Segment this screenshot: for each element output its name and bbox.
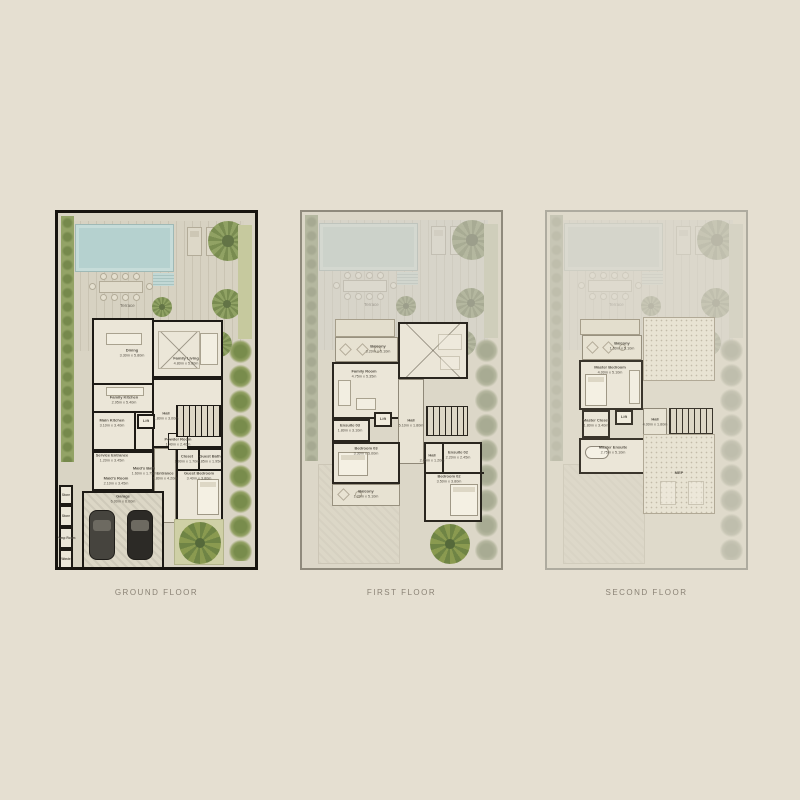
palm-tree-icon — [456, 288, 486, 318]
sofa-icon — [438, 334, 462, 350]
outdoor-seat-icon — [660, 481, 676, 505]
chair-icon — [600, 293, 607, 300]
room-label-family-living: Family Living4.80m x 5.80m — [165, 356, 207, 366]
room-label-balcony-top: Balcony3.20m x 5.10m — [357, 344, 399, 354]
pergola — [335, 319, 395, 337]
palm-tree-icon — [396, 296, 416, 316]
caption-second-floor: SECOND FLOOR — [545, 588, 748, 597]
room-label-balcony-lower: Balcony1.20m x 5.10m — [345, 489, 387, 499]
chair-icon — [100, 294, 107, 301]
tree-icon — [179, 522, 221, 564]
wall — [94, 383, 152, 385]
room-label-service-entrance: Service Entrance1.20m x 3.45m — [91, 453, 133, 463]
outdoor-dining-table — [585, 276, 635, 296]
room-label-hall-1: Hall5.10m x 1.80m — [390, 418, 432, 428]
chair-icon — [100, 273, 107, 280]
room-label-powder: Powder Room1.40m x 2.40m — [157, 437, 199, 447]
outdoor-seat-icon — [688, 481, 704, 505]
outdoor-dining-table — [340, 276, 390, 296]
room-label-master-bedroom: Master Bedroom4.00m x 5.10m — [589, 365, 631, 375]
room-label-store-1: Store — [55, 493, 83, 497]
ground-floor-plan: Terrace Dining3.30m x 5.80m — [55, 210, 258, 570]
chair-icon — [600, 272, 607, 279]
palm-tree-icon — [641, 296, 661, 316]
first-floor-plan: Terrace — [300, 210, 503, 570]
chair-icon — [377, 293, 384, 300]
chair-icon — [635, 282, 642, 289]
wall — [134, 411, 136, 451]
chair-icon — [122, 294, 129, 301]
lawn-strip — [484, 224, 498, 338]
sun-lounger-icon — [676, 226, 691, 255]
lawn-strip — [729, 224, 743, 338]
tree-icon — [430, 524, 470, 564]
sofa-icon — [356, 398, 376, 410]
lawn-strip — [238, 225, 252, 339]
car-icon — [127, 510, 153, 560]
roof-terrace — [643, 317, 715, 381]
second-floor-plan: Terrace Balcony1.50m x 5.10m Master Bedr… — [545, 210, 748, 570]
room-label-terrace: Terrace — [364, 302, 379, 307]
roof-below — [563, 464, 645, 564]
table-top — [343, 280, 387, 292]
chair-icon — [111, 294, 118, 301]
room-label-store-2: Store — [55, 514, 83, 518]
room-label-hall: Hall4.00m x 1.80m — [634, 417, 676, 427]
chair-icon — [111, 273, 118, 280]
room-label-guest-bath: Guest Bath1.85m x 1.95m — [189, 454, 231, 464]
chair-icon — [355, 272, 362, 279]
room-label-waste: Waste — [55, 557, 83, 561]
sofa-icon — [440, 356, 460, 370]
table-top — [99, 281, 143, 293]
room-label-master-ensuite: Master Ensuite2.75m x 5.10m — [592, 445, 634, 455]
caption-ground-floor: GROUND FLOOR — [55, 588, 258, 597]
chair-icon — [122, 273, 129, 280]
outdoor-seat-icon — [586, 341, 599, 354]
chair-icon — [622, 293, 629, 300]
chair-icon — [366, 272, 373, 279]
room-label-hall: Hall1.80m x 3.00m — [145, 411, 187, 421]
wall — [94, 411, 152, 413]
swimming-pool — [75, 224, 174, 272]
bed-icon — [450, 484, 478, 516]
sun-lounger-icon — [431, 226, 446, 255]
room-label-terrace: Terrace — [120, 303, 135, 308]
chair-icon — [390, 282, 397, 289]
room-label-family-kitchen: Family Kitchen2.95m x 5.40m — [103, 395, 145, 405]
chair-icon — [366, 293, 373, 300]
room-label-bedroom-03: Bedroom 033.30m x 5.00m — [345, 446, 387, 456]
chair-icon — [333, 282, 340, 289]
guest-bed-icon — [197, 479, 219, 515]
swimming-pool — [319, 223, 418, 271]
chair-icon — [589, 293, 596, 300]
chair-icon — [133, 273, 140, 280]
outdoor-dining-table — [96, 277, 146, 297]
room-label-maids-room: Maid's Room2.10m x 3.45m — [95, 476, 137, 486]
chair-icon — [622, 272, 629, 279]
pool-steps — [153, 273, 174, 286]
pool-steps — [397, 272, 418, 285]
chair-icon — [355, 293, 362, 300]
double-height-void — [398, 322, 468, 379]
chair-icon — [133, 294, 140, 301]
chair-icon — [611, 293, 618, 300]
room-label-mep: MEP — [658, 471, 700, 476]
caption-first-floor: FIRST FLOOR — [300, 588, 503, 597]
brochure-page: Terrace Dining3.30m x 5.80m — [0, 0, 800, 800]
car-icon — [89, 510, 115, 560]
outdoor-seat-icon — [339, 343, 352, 356]
chair-icon — [611, 272, 618, 279]
room-label-pump-room: Pump Room — [55, 536, 83, 540]
chair-icon — [377, 272, 384, 279]
room-label-terrace: Terrace — [609, 302, 624, 307]
room-label-family-room: Family Room4.75m x 5.35m — [343, 369, 385, 379]
sofa-icon — [338, 380, 351, 406]
room-label-bedroom-02: Bedroom 023.50m x 3.80m — [428, 474, 470, 484]
room-label-guest-bedroom: Guest Bedroom3.40m x 3.80m — [178, 471, 220, 481]
palm-tree-icon — [152, 297, 172, 317]
chair-icon — [89, 283, 96, 290]
sun-lounger-icon — [187, 227, 202, 256]
pergola — [580, 319, 640, 335]
hedge-row — [305, 215, 318, 461]
room-label-ensuite-02: Ensuite 022.20m x 2.45m — [437, 450, 479, 460]
tree-row — [229, 339, 252, 561]
pool-steps — [642, 272, 663, 285]
room-label-dining: Dining3.30m x 5.80m — [111, 348, 153, 358]
bed-icon — [585, 374, 607, 406]
hedge-row — [550, 215, 563, 461]
chair-icon — [146, 283, 153, 290]
tree-row — [720, 338, 743, 560]
room-label-ensuite-03: Ensuite 031.80m x 3.10m — [329, 423, 371, 433]
room-label-balcony: Balcony1.50m x 5.10m — [601, 341, 643, 351]
swimming-pool — [564, 223, 663, 271]
room-label-master-closet: Master Closet1.80m x 3.40m — [575, 418, 617, 428]
room-label-garage: Garage6.00m x 6.00m — [102, 494, 144, 504]
chair-icon — [578, 282, 585, 289]
hedge-row — [61, 216, 74, 462]
wardrobe-icon — [629, 370, 640, 404]
chair-icon — [344, 272, 351, 279]
dining-table-icon — [106, 333, 142, 345]
chair-icon — [589, 272, 596, 279]
chair-icon — [344, 293, 351, 300]
room-master-ensuite — [579, 438, 645, 474]
palm-tree-icon — [701, 288, 731, 318]
staircase — [426, 406, 468, 436]
table-top — [588, 280, 632, 292]
staircase — [176, 405, 221, 437]
